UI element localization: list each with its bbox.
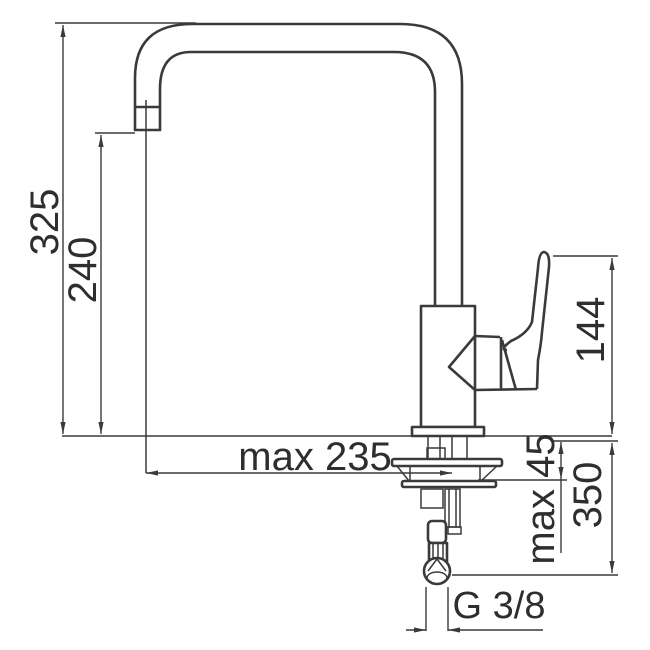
spout-inner-profile (160, 52, 435, 305)
technical-drawing-canvas: 325 240 max 235 144 max 45 350 G 3/8 (0, 0, 650, 650)
dim-label-deck-thickness: max 45 (519, 433, 563, 564)
spout-outer-profile (135, 24, 462, 305)
dim-label-hose-length: 350 (566, 462, 610, 529)
mounting-nut (421, 489, 443, 508)
washer-plate-upper (392, 459, 502, 466)
dim-label-spout-reach: max 235 (238, 435, 391, 479)
hose-cap (428, 521, 446, 543)
faucet-outline (135, 24, 549, 473)
dim-label-handle-height: 144 (569, 297, 613, 364)
stud-threads (449, 489, 456, 527)
dim-label-connection-thread: G 3/8 (453, 585, 546, 627)
base-flange (412, 427, 484, 436)
aerator (135, 107, 160, 130)
washer-plate-lower (402, 481, 496, 487)
dim-label-spout-outlet-height: 240 (61, 237, 105, 304)
mounting-hardware (392, 436, 502, 584)
dimension-labels: 325 240 max 235 144 max 45 350 G 3/8 (23, 189, 613, 627)
threaded-stud (445, 489, 460, 527)
stud-tip (448, 527, 461, 534)
shank-step (427, 448, 445, 459)
faucet-dimension-drawing: 325 240 max 235 144 max 45 350 G 3/8 (0, 0, 650, 650)
